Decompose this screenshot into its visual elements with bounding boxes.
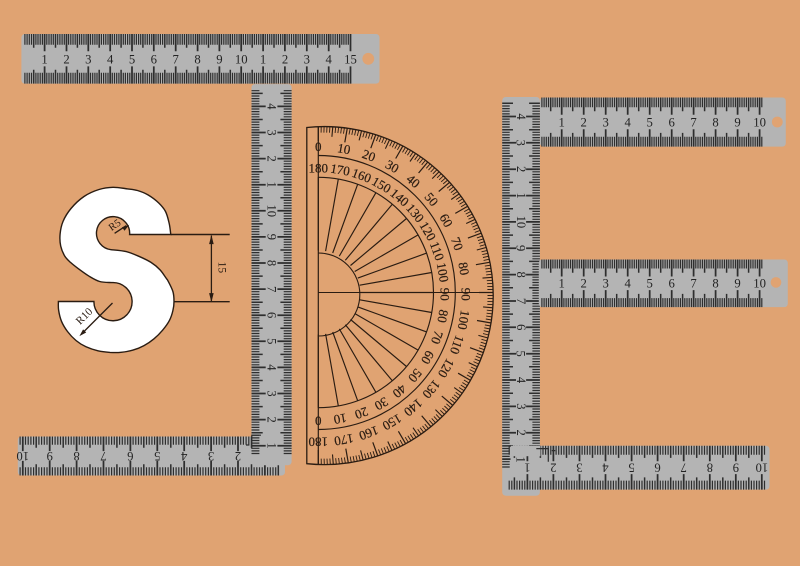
svg-text:5: 5 bbox=[264, 338, 278, 344]
svg-text:9: 9 bbox=[264, 234, 278, 240]
svg-text:1: 1 bbox=[41, 53, 47, 67]
svg-text:7: 7 bbox=[690, 277, 696, 291]
svg-text:5: 5 bbox=[628, 460, 634, 474]
svg-text:6: 6 bbox=[514, 324, 528, 330]
svg-text:4: 4 bbox=[326, 53, 333, 67]
svg-text:10: 10 bbox=[336, 140, 351, 157]
svg-text:1: 1 bbox=[514, 192, 528, 198]
svg-text:4: 4 bbox=[107, 53, 114, 67]
svg-text:8: 8 bbox=[73, 449, 79, 463]
svg-text:2: 2 bbox=[581, 115, 587, 129]
svg-text:10: 10 bbox=[756, 460, 769, 474]
svg-text:2: 2 bbox=[514, 166, 528, 172]
svg-text:1: 1 bbox=[559, 115, 565, 129]
svg-text:9: 9 bbox=[733, 460, 739, 474]
svg-text:10: 10 bbox=[264, 205, 278, 218]
svg-text:2: 2 bbox=[264, 416, 278, 422]
svg-text:0: 0 bbox=[315, 413, 322, 428]
svg-text:180: 180 bbox=[309, 160, 329, 175]
svg-text:6: 6 bbox=[669, 277, 675, 291]
svg-text:7: 7 bbox=[681, 460, 687, 474]
svg-text:1: 1 bbox=[559, 277, 565, 291]
svg-text:9: 9 bbox=[734, 115, 740, 129]
svg-text:4: 4 bbox=[625, 115, 632, 129]
svg-text:6: 6 bbox=[654, 460, 660, 474]
svg-text:9: 9 bbox=[47, 449, 53, 463]
svg-text:3: 3 bbox=[576, 460, 582, 474]
svg-text:8: 8 bbox=[264, 260, 278, 266]
svg-text:5: 5 bbox=[514, 350, 528, 356]
svg-text:10: 10 bbox=[333, 410, 348, 427]
svg-text:9: 9 bbox=[514, 245, 528, 251]
svg-text:4: 4 bbox=[264, 364, 278, 371]
svg-text:3: 3 bbox=[514, 140, 528, 146]
svg-text:0: 0 bbox=[315, 139, 322, 154]
svg-text:15: 15 bbox=[344, 53, 357, 67]
svg-text:1: 1 bbox=[264, 443, 278, 449]
svg-text:3: 3 bbox=[603, 115, 609, 129]
svg-text:8: 8 bbox=[707, 460, 713, 474]
svg-text:5: 5 bbox=[647, 115, 653, 129]
svg-text:3: 3 bbox=[85, 53, 91, 67]
svg-text:8: 8 bbox=[514, 271, 528, 277]
svg-text:3: 3 bbox=[264, 390, 278, 396]
svg-text:2: 2 bbox=[514, 430, 528, 436]
svg-text:7: 7 bbox=[264, 286, 278, 292]
svg-text:90: 90 bbox=[459, 288, 474, 301]
svg-text:2: 2 bbox=[550, 460, 556, 474]
svg-text:2: 2 bbox=[235, 449, 241, 463]
svg-text:5: 5 bbox=[129, 53, 135, 67]
svg-text:3: 3 bbox=[603, 277, 609, 291]
svg-text:80: 80 bbox=[434, 309, 451, 324]
svg-text:9: 9 bbox=[734, 277, 740, 291]
svg-text:10: 10 bbox=[753, 115, 766, 129]
svg-text:6: 6 bbox=[151, 53, 157, 67]
svg-text:10: 10 bbox=[753, 277, 766, 291]
svg-text:8: 8 bbox=[712, 277, 718, 291]
svg-text:6: 6 bbox=[264, 312, 278, 318]
svg-text:10: 10 bbox=[514, 216, 528, 229]
svg-text:90: 90 bbox=[437, 288, 452, 301]
svg-text:1: 1 bbox=[264, 182, 278, 188]
svg-text:3: 3 bbox=[304, 53, 310, 67]
svg-text:4: 4 bbox=[514, 113, 528, 120]
svg-text:2: 2 bbox=[264, 155, 278, 161]
svg-text:4: 4 bbox=[602, 460, 609, 474]
svg-text:4: 4 bbox=[625, 277, 632, 291]
svg-text:7: 7 bbox=[514, 298, 528, 304]
svg-text:6: 6 bbox=[669, 115, 675, 129]
svg-text:1: 1 bbox=[260, 53, 266, 67]
svg-text:15: 15 bbox=[215, 262, 227, 274]
svg-text:80: 80 bbox=[455, 261, 472, 276]
svg-text:4: 4 bbox=[264, 103, 278, 110]
svg-text:7: 7 bbox=[690, 115, 696, 129]
svg-text:8: 8 bbox=[194, 53, 200, 67]
svg-text:9: 9 bbox=[216, 53, 222, 67]
svg-text:2: 2 bbox=[282, 53, 288, 67]
svg-text:4: 4 bbox=[180, 449, 187, 463]
svg-text:8: 8 bbox=[712, 115, 718, 129]
svg-text:4: 4 bbox=[514, 377, 528, 384]
svg-text:7: 7 bbox=[100, 449, 106, 463]
svg-text:6: 6 bbox=[127, 449, 133, 463]
svg-text:10: 10 bbox=[235, 53, 248, 67]
svg-text:7: 7 bbox=[173, 53, 179, 67]
svg-text:5: 5 bbox=[647, 277, 653, 291]
svg-text:2: 2 bbox=[63, 53, 69, 67]
svg-text:3: 3 bbox=[264, 129, 278, 135]
svg-text:1: 1 bbox=[514, 457, 528, 463]
svg-text:3: 3 bbox=[514, 403, 528, 409]
svg-text:180: 180 bbox=[309, 435, 329, 450]
svg-text:5: 5 bbox=[154, 449, 160, 463]
svg-text:10: 10 bbox=[17, 449, 30, 463]
svg-text:2: 2 bbox=[581, 277, 587, 291]
svg-text:3: 3 bbox=[208, 449, 214, 463]
